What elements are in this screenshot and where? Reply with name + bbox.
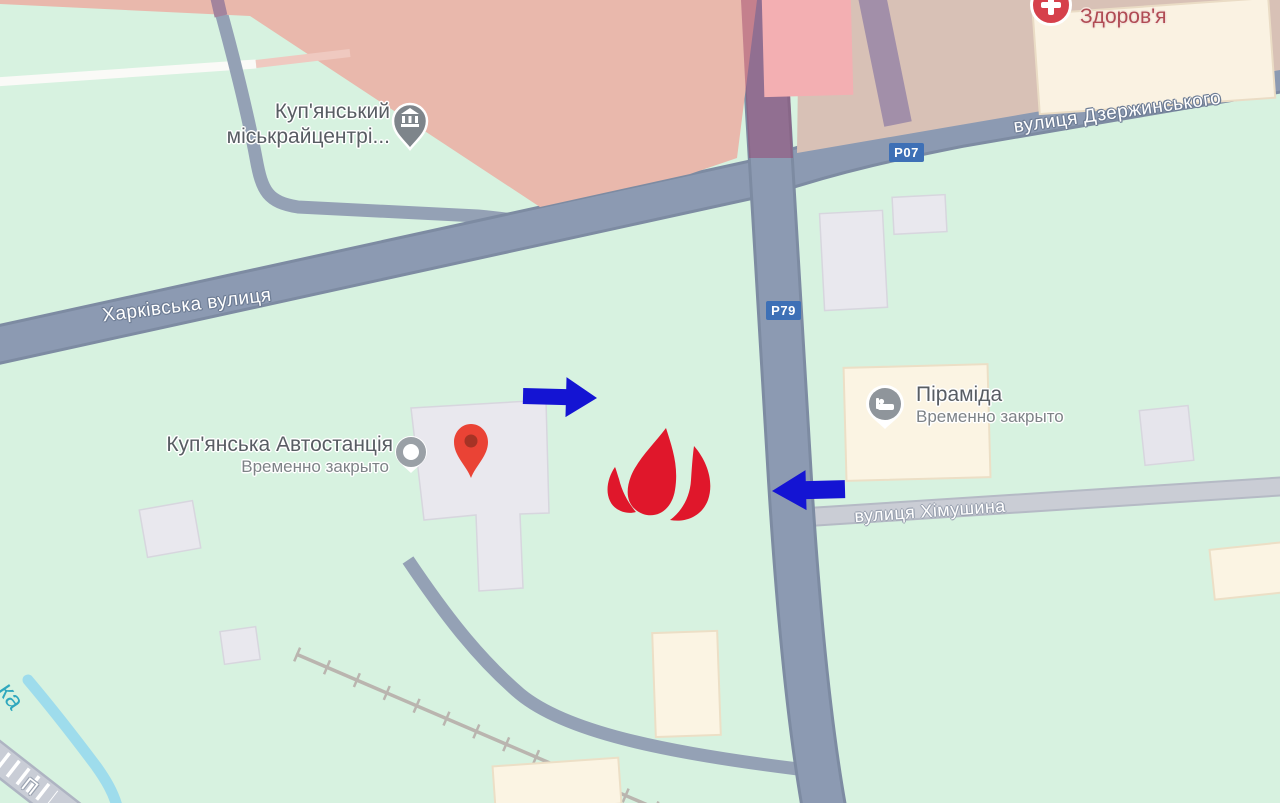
building-gray-4 (892, 195, 947, 235)
route-badge-p07: P07 (889, 143, 924, 162)
route-badge-p79: P79 (766, 301, 801, 320)
building-cream-2 (493, 758, 622, 803)
building-cream-3 (1210, 542, 1280, 599)
bus-station-status: Временно закрыто (85, 457, 393, 477)
map-canvas[interactable]: Куп'янський міськрайцентрі... Здоров'я П… (0, 0, 1280, 803)
poi-label-health[interactable]: Здоров'я (1080, 5, 1167, 29)
building-gray-1 (139, 501, 201, 558)
building-cream-1 (652, 631, 721, 737)
health-pin-icon[interactable] (1032, 0, 1071, 25)
building-gray-2 (220, 627, 260, 665)
poi-label-bus-station[interactable]: Куп'янська Автостанція Временно закрыто (85, 433, 393, 477)
pyramid-status: Временно закрыто (916, 407, 1064, 427)
poi-label-city-center[interactable]: Куп'янський міськрайцентрі... (140, 99, 390, 149)
bus-station-name: Куп'янська Автостанція (85, 433, 393, 457)
poi-label-pyramid[interactable]: Піраміда Временно закрыто (916, 383, 1064, 427)
building-gray-5 (1139, 406, 1193, 466)
building-pink (762, 0, 854, 97)
tinted-minor-road (216, 0, 221, 16)
pyramid-name: Піраміда (916, 383, 1064, 407)
city-center-line1: Куп'янський (140, 99, 390, 124)
building-gray-3 (820, 210, 888, 310)
city-center-line2: міськрайцентрі... (140, 124, 390, 149)
